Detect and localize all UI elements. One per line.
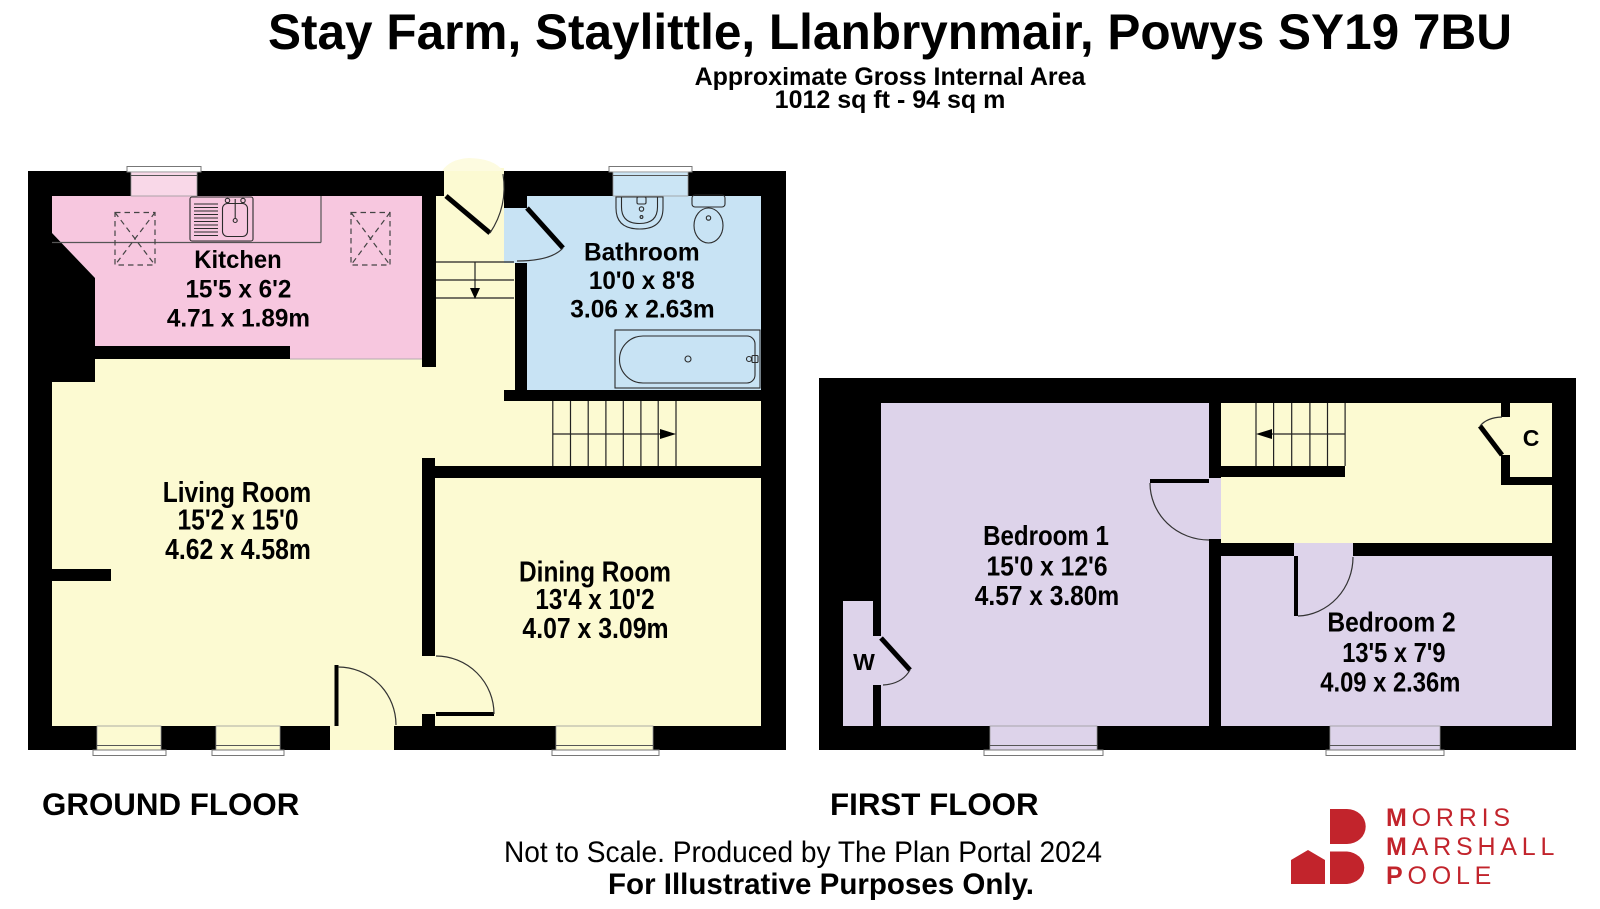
svg-text:4.71 x 1.89m: 4.71 x 1.89m	[167, 305, 310, 333]
svg-text:15'0 x 12'6: 15'0 x 12'6	[986, 550, 1107, 581]
svg-text:1012 sq ft - 94 sq m: 1012 sq ft - 94 sq m	[775, 86, 1006, 114]
svg-text:Bathroom: Bathroom	[584, 239, 700, 267]
svg-text:4.09 x 2.36m: 4.09 x 2.36m	[1320, 666, 1460, 697]
svg-text:Bedroom 2: Bedroom 2	[1327, 607, 1455, 638]
svg-text:13'5 x 7'9: 13'5 x 7'9	[1342, 637, 1445, 668]
svg-text:3.06 x 2.63m: 3.06 x 2.63m	[570, 296, 714, 324]
svg-text:MARSHALL: MARSHALL	[1386, 833, 1559, 861]
svg-text:For Illustrative Purposes Only: For Illustrative Purposes Only.	[608, 868, 1034, 901]
svg-text:Bedroom 1: Bedroom 1	[983, 520, 1109, 551]
svg-text:13'4 x 10'2: 13'4 x 10'2	[535, 584, 654, 616]
svg-text:15'2 x 15'0: 15'2 x 15'0	[178, 505, 299, 537]
svg-text:4.07 x 3.09m: 4.07 x 3.09m	[522, 613, 668, 645]
svg-text:W: W	[853, 649, 875, 675]
svg-text:GROUND FLOOR: GROUND FLOOR	[42, 787, 299, 822]
svg-text:10'0 x 8'8: 10'0 x 8'8	[589, 267, 695, 295]
svg-text:POOLE: POOLE	[1386, 862, 1496, 890]
svg-text:C: C	[1523, 425, 1540, 451]
svg-text:FIRST FLOOR: FIRST FLOOR	[830, 787, 1039, 822]
svg-text:15'5 x 6'2: 15'5 x 6'2	[185, 276, 291, 304]
svg-text:4.57 x 3.80m: 4.57 x 3.80m	[975, 580, 1119, 611]
svg-text:MORRIS: MORRIS	[1386, 804, 1515, 832]
svg-text:Not to Scale. Produced by The: Not to Scale. Produced by The Plan Porta…	[504, 836, 1102, 869]
svg-text:Kitchen: Kitchen	[194, 246, 281, 274]
svg-text:4.62 x 4.58m: 4.62 x 4.58m	[165, 534, 311, 566]
svg-text:Stay Farm, Staylittle, Llanbry: Stay Farm, Staylittle, Llanbrynmair, Pow…	[268, 4, 1512, 60]
